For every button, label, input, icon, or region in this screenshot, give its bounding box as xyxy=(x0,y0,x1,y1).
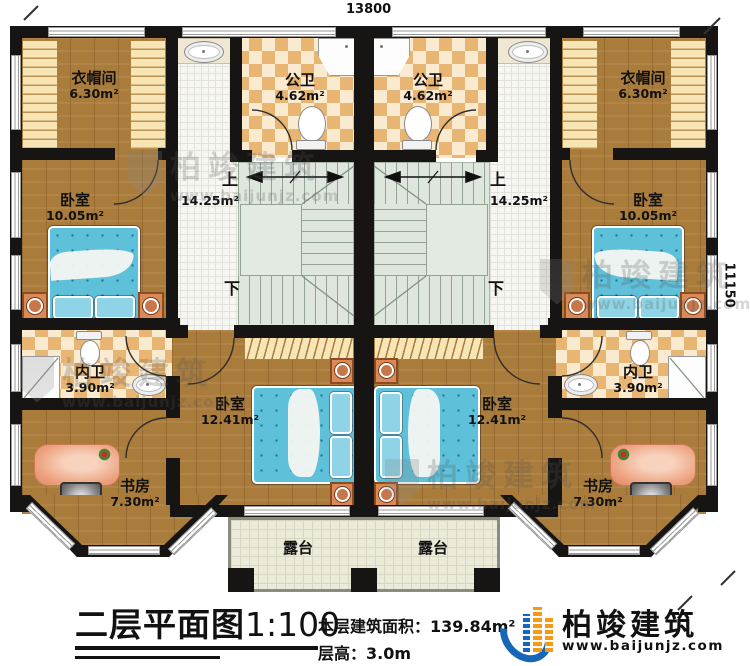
room-area: 12.41m² xyxy=(468,413,526,427)
watermark-shield-icon xyxy=(540,259,574,305)
watermark-name: 柏竣建筑 xyxy=(170,142,339,187)
room-area: 12.41m² xyxy=(201,413,259,427)
room-label-bedroom2-right: 卧室 12.41m² xyxy=(447,396,547,428)
room-area: 4.62m² xyxy=(403,89,452,103)
floor-plan: 衣帽间 6.30m² 公卫 4.62m² 公卫 4.62m² 衣帽间 6.30m… xyxy=(0,0,750,666)
watermark-name: 柏竣建筑 xyxy=(62,348,231,393)
brand-website: www.baijunjz.com xyxy=(562,638,724,654)
room-name: 公卫 xyxy=(413,72,443,89)
floor-height-line: 层高：3.0m xyxy=(318,640,411,664)
room-name: 书房 xyxy=(120,478,150,495)
watermark: 柏竣建筑 www.baijunjz.com xyxy=(540,250,750,313)
room-label-ensuite-right: 内卫 3.90m² xyxy=(588,364,688,396)
room-name: 衣帽间 xyxy=(620,70,665,87)
watermark: 柏竣建筑 www.baijunjz.com xyxy=(20,348,231,411)
dimension-top: 13800 xyxy=(346,2,391,17)
room-label-bedroom-left: 卧室 10.05m² xyxy=(25,192,125,224)
door-arc xyxy=(494,338,540,384)
door-arc xyxy=(126,418,166,458)
room-label-study-left: 书房 7.30m² xyxy=(85,478,185,510)
watermark-name: 柏竣建筑 xyxy=(427,450,596,495)
title-underline xyxy=(75,646,318,650)
floor-height-value: 3.0m xyxy=(366,644,411,663)
stair-down-label-left: 下 xyxy=(224,275,240,299)
room-name: 内卫 xyxy=(623,364,653,381)
dimension-tick xyxy=(721,571,735,585)
watermark-url: www.baijunjz.com xyxy=(62,393,231,411)
watermark-url: www.baijunjz.com xyxy=(582,295,750,313)
title-underline xyxy=(75,656,220,659)
room-name: 卧室 xyxy=(482,396,512,413)
room-label-bedroom-right: 卧室 10.05m² xyxy=(598,192,698,224)
watermark: 柏竣建筑 www.baijunjz.com xyxy=(128,142,339,205)
room-label-public-bath-right: 公卫 4.62m² xyxy=(378,72,478,104)
watermark-shield-icon xyxy=(385,459,419,505)
watermark-url: www.baijunjz.com xyxy=(427,495,596,513)
logo-building-icon xyxy=(523,614,530,652)
room-area: 3.90m² xyxy=(613,381,662,395)
room-name: 露台 xyxy=(418,540,448,557)
door-arc xyxy=(436,110,476,150)
stair-down-label-right: 下 xyxy=(488,275,504,299)
room-name: 露台 xyxy=(283,540,313,557)
room-label-terrace-left: 露台 xyxy=(268,540,328,557)
room-area: 10.05m² xyxy=(46,209,104,223)
room-label-cloakroom-right: 衣帽间 6.30m² xyxy=(593,70,693,102)
room-name: 衣帽间 xyxy=(71,70,116,87)
stair-diagonal xyxy=(302,276,354,316)
room-name: 卧室 xyxy=(633,192,663,209)
room-name: 公卫 xyxy=(285,72,315,89)
logo-building-icon xyxy=(533,607,542,652)
room-area: 4.62m² xyxy=(275,89,324,103)
room-area: 6.30m² xyxy=(618,87,667,101)
room-label-cloakroom-left: 衣帽间 6.30m² xyxy=(44,70,144,102)
room-area: 7.30m² xyxy=(110,495,159,509)
logo-building-icon xyxy=(545,616,553,652)
stair-up-label-right: 上 xyxy=(490,166,506,190)
watermark-url: www.baijunjz.com xyxy=(170,187,339,205)
stair-diagonal xyxy=(374,276,426,316)
room-area: 10.05m² xyxy=(619,209,677,223)
brand-logo-icon xyxy=(502,598,558,658)
floor-area-label: 本层建筑面积： xyxy=(318,617,430,636)
room-label-terrace-right: 露台 xyxy=(403,540,463,557)
watermark-shield-icon xyxy=(20,357,54,403)
watermark-shield-icon xyxy=(128,151,162,197)
floor-height-label: 层高： xyxy=(318,644,366,663)
watermark-name: 柏竣建筑 xyxy=(582,250,750,295)
arrowhead xyxy=(466,172,480,182)
dimension-tick xyxy=(704,18,720,34)
room-area: 6.30m² xyxy=(69,87,118,101)
room-name: 卧室 xyxy=(60,192,90,209)
room-area: 14.25m² xyxy=(490,194,548,208)
plan-title-text: 二层平面图 xyxy=(75,605,245,644)
dimension-tick xyxy=(24,6,38,20)
floor-area-line: 本层建筑面积：139.84m² xyxy=(318,613,515,637)
watermark: 柏竣建筑 www.baijunjz.com xyxy=(385,450,596,513)
brand-logo: 柏竣建筑 www.baijunjz.com xyxy=(500,596,715,662)
room-label-public-bath-left: 公卫 4.62m² xyxy=(250,72,350,104)
plan-title: 二层平面图1:100 xyxy=(75,598,340,646)
stair-area-right: 14.25m² xyxy=(479,194,559,208)
